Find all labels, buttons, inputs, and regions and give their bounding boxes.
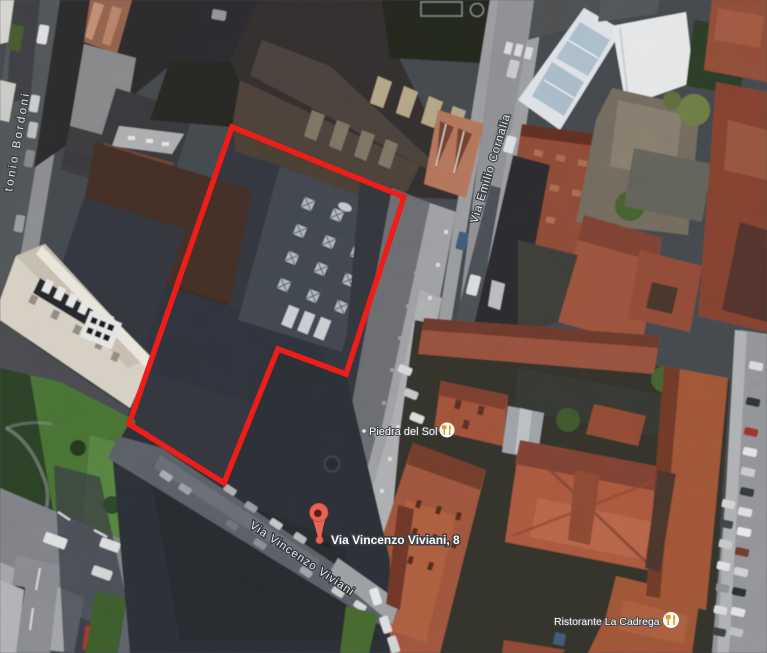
svg-text:Ristorante La Cadrega: Ristorante La Cadrega (554, 616, 660, 628)
svg-text:Piedra del Sol: Piedra del Sol (369, 426, 438, 438)
svg-text:Via Vincenzo Viviani, 8: Via Vincenzo Viviani, 8 (331, 533, 460, 547)
